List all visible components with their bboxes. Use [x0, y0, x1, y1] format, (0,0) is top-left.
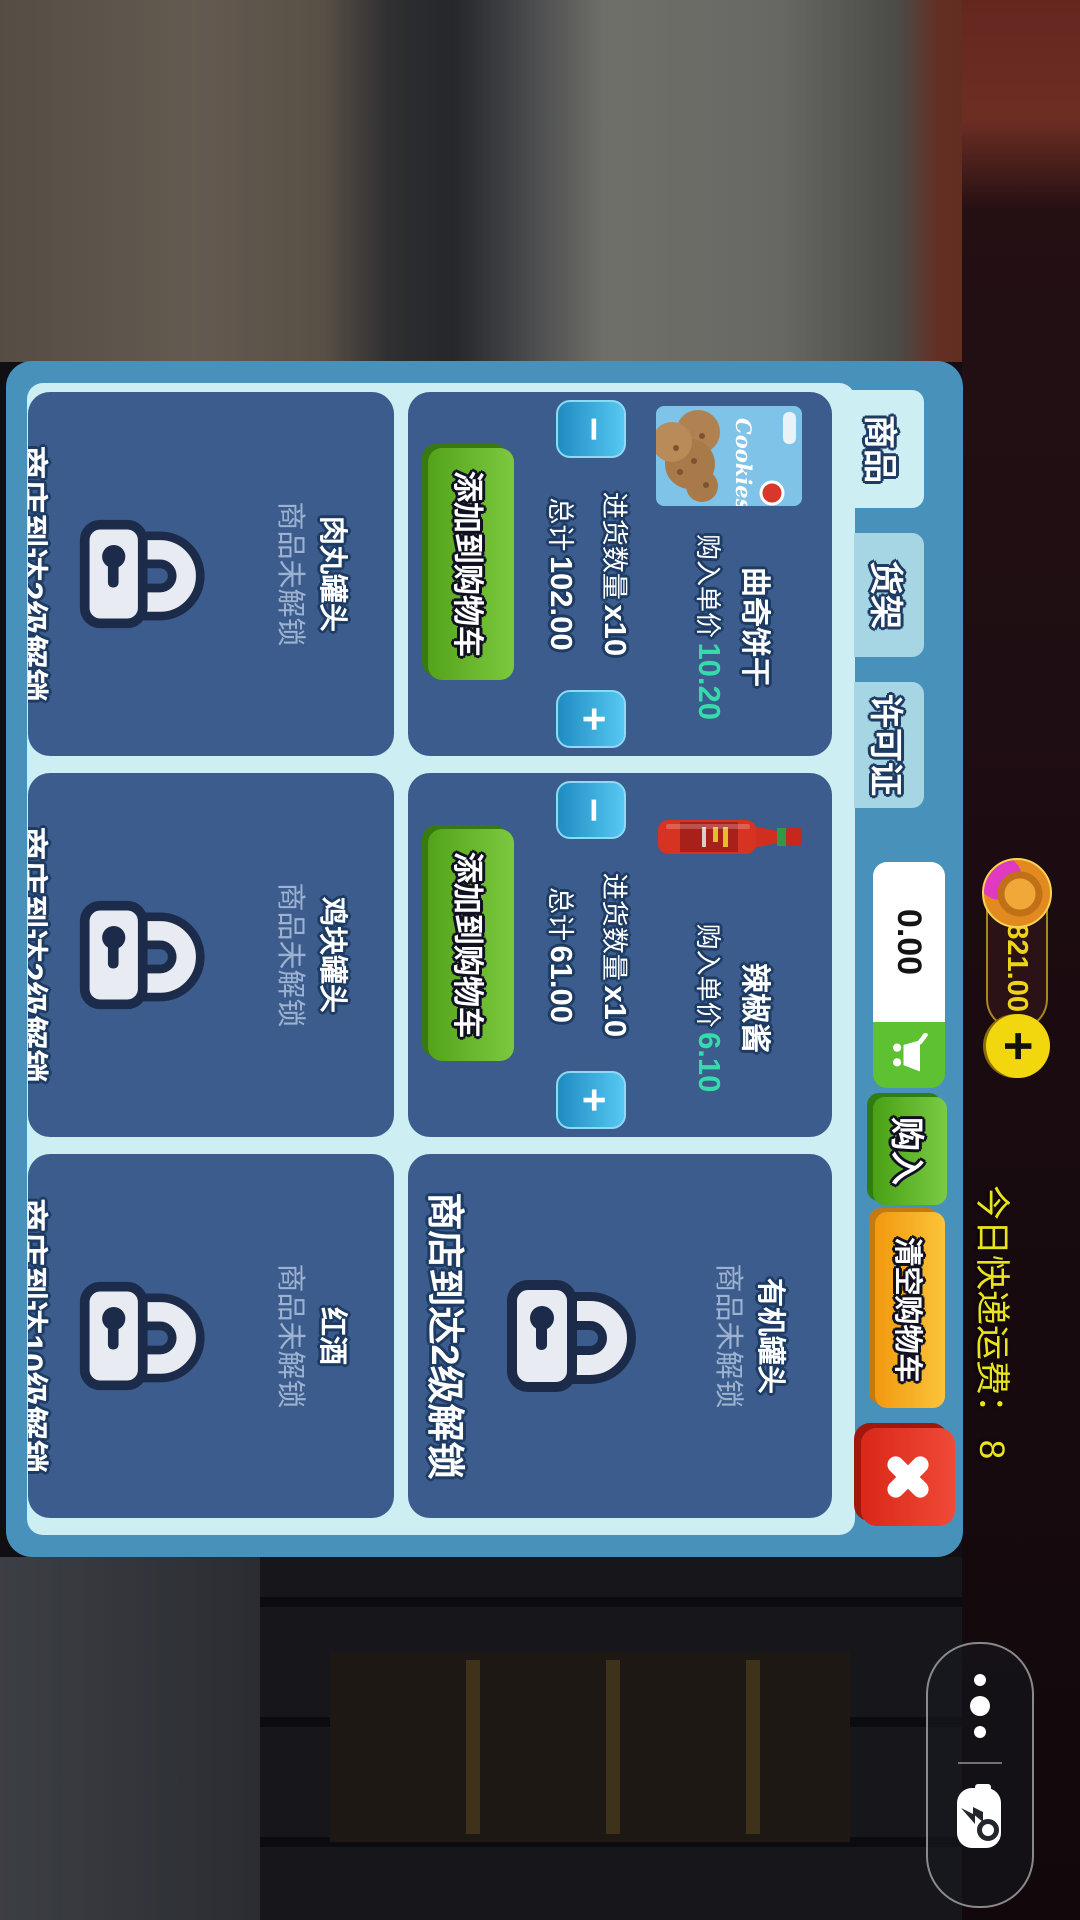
unit-price-label: 购入单价 — [693, 924, 723, 1028]
qty-label: 进货数量 — [599, 873, 629, 981]
product-card-cookies: Cookies 曲奇饼干 购入单价 10.20 进货数量 x10 总 — [408, 392, 832, 756]
decrease-qty-button[interactable]: − — [556, 781, 626, 839]
buy-label: 购入 — [886, 1117, 935, 1185]
total-row: 总计 102.00 — [543, 458, 582, 690]
qty-row: 进货数量 x10 — [597, 839, 636, 1071]
coin-balance: 821.00 — [1001, 923, 1034, 1012]
padlock-icon — [77, 883, 222, 1028]
unlock-requirement: 商店到达10级解锁 — [28, 1154, 58, 1518]
delivery-fee-note: 今日快递运费： 8 — [969, 1185, 1020, 1605]
dot — [974, 1674, 986, 1686]
product-card-red-wine-locked: 红酒 商品未解锁 商店到达10级解锁 — [28, 1154, 394, 1518]
dot — [970, 1696, 990, 1716]
total-value: 102.00 — [544, 556, 579, 651]
unit-price-row: 购入单价 6.10 — [691, 888, 728, 1128]
locked-label: 商品未解锁 — [272, 392, 314, 756]
buy-button[interactable]: 购入 — [873, 1097, 947, 1205]
locked-label: 商品未解锁 — [272, 773, 314, 1137]
tab-shelves[interactable]: 货架 — [854, 533, 924, 657]
cart-button[interactable] — [873, 1022, 945, 1088]
padlock-icon — [77, 1264, 222, 1409]
tab-label: 许可证 — [865, 694, 914, 796]
add-to-cart-button[interactable]: 添加到购物车 — [428, 448, 514, 680]
more-dots-icon[interactable] — [970, 1674, 990, 1738]
unlock-requirement: 商店到达2级解锁 — [28, 392, 58, 756]
decrease-qty-button[interactable]: − — [556, 400, 626, 458]
tab-products[interactable]: 商品 — [842, 390, 924, 508]
product-card-chicken-cans-locked: 鸡块罐头 商品未解锁 商店到达2级解锁 — [28, 773, 394, 1137]
locked-label: 商品未解锁 — [710, 1154, 752, 1518]
product-card-meatball-cans-locked: 肉丸罐头 商品未解锁 商店到达2级解锁 — [28, 392, 394, 756]
total-label: 总计 — [545, 497, 575, 551]
dot — [974, 1726, 986, 1738]
close-x-icon — [871, 1440, 945, 1514]
product-name: 辣椒酱 — [736, 888, 780, 1128]
svg-text:Cookies: Cookies — [731, 418, 756, 506]
cart-total-display: 0.00 — [873, 862, 945, 1022]
cart-total-value: 0.00 — [890, 909, 929, 975]
floating-menu-pill — [926, 1642, 1034, 1908]
product-name: 肉丸罐头 — [314, 392, 356, 756]
pill-divider — [958, 1762, 1002, 1764]
plus-icon: + — [992, 1031, 1044, 1061]
add-to-cart-button[interactable]: 添加到购物车 — [428, 829, 514, 1061]
product-image-hot-sauce-bottle — [656, 787, 802, 887]
unit-price-label: 购入单价 — [693, 534, 723, 638]
qty-label: 进货数量 — [599, 492, 629, 600]
product-name: 曲奇饼干 — [736, 507, 780, 747]
unit-price-row: 购入单价 10.20 — [691, 507, 728, 747]
product-name: 有机罐头 — [752, 1154, 794, 1518]
add-coins-button[interactable]: + — [986, 1014, 1050, 1078]
locked-label: 商品未解锁 — [272, 1154, 314, 1518]
increase-qty-button[interactable]: + — [556, 1071, 626, 1129]
unlock-requirement: 商店到达2级解锁 — [421, 1154, 476, 1518]
qty-row: 进货数量 x10 — [597, 458, 636, 690]
unit-price-value: 10.20 — [692, 642, 727, 720]
clear-cart-button[interactable]: 清空购物车 — [875, 1212, 945, 1408]
padlock-icon — [77, 502, 222, 647]
game-stage: 821.00 + 今日快递运费： 8 商品 货架 许可证 — [0, 0, 1080, 1920]
qty-value: x10 — [598, 985, 633, 1037]
shopping-cart-icon — [889, 1033, 929, 1077]
padlock-icon — [504, 1261, 654, 1411]
total-row: 总计 61.00 — [543, 839, 582, 1071]
gold-coin-icon — [980, 856, 1054, 930]
product-card-organic-cans-locked: 有机罐头 商品未解锁 商店到达2级解锁 — [408, 1154, 832, 1518]
product-name: 红酒 — [314, 1154, 356, 1518]
tab-licenses[interactable]: 许可证 — [854, 682, 924, 808]
product-image-cookies-box: Cookies — [656, 406, 802, 506]
game-controller-icon[interactable] — [955, 1784, 1005, 1850]
unit-price-value: 6.10 — [692, 1032, 727, 1092]
tab-label: 货架 — [865, 561, 914, 629]
product-name: 鸡块罐头 — [314, 773, 356, 1137]
clear-cart-label: 清空购物车 — [889, 1237, 931, 1382]
unlock-requirement: 商店到达2级解锁 — [28, 773, 58, 1137]
tab-label: 商品 — [859, 415, 908, 483]
total-value: 61.00 — [544, 945, 579, 1023]
total-label: 总计 — [545, 887, 575, 941]
qty-value: x10 — [598, 604, 633, 656]
product-card-hot-sauce: 辣椒酱 购入单价 6.10 进货数量 x10 总计 61.00 − + 添加到购… — [408, 773, 832, 1137]
close-button[interactable] — [861, 1428, 955, 1526]
increase-qty-button[interactable]: + — [556, 690, 626, 748]
